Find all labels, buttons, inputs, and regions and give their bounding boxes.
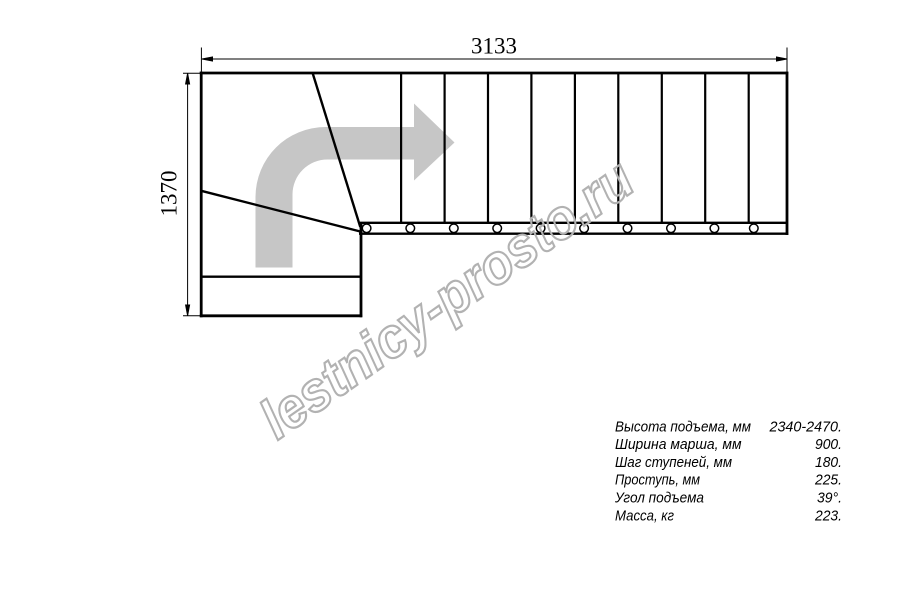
svg-text:Ширина марша, мм: Ширина марша, мм — [615, 436, 742, 453]
svg-text:223.: 223. — [814, 507, 842, 524]
svg-text:225.: 225. — [814, 472, 842, 489]
svg-text:lestnicy-prosto.ru: lestnicy-prosto.ru — [248, 147, 645, 451]
svg-text:Проступь, мм: Проступь, мм — [615, 472, 700, 489]
svg-text:Масса, кг: Масса, кг — [615, 507, 675, 524]
svg-text:Угол подъема: Угол подъема — [614, 490, 704, 507]
svg-text:Шаг ступеней, мм: Шаг ступеней, мм — [615, 454, 732, 471]
svg-text:180.: 180. — [815, 454, 842, 471]
svg-text:900.: 900. — [815, 436, 842, 453]
svg-text:3133: 3133 — [471, 34, 517, 59]
svg-text:Высота подъема, мм: Высота подъема, мм — [615, 418, 751, 435]
svg-text:2340-2470.: 2340-2470. — [769, 418, 842, 435]
svg-text:1370: 1370 — [157, 171, 182, 217]
svg-text:39°.: 39°. — [817, 490, 842, 507]
